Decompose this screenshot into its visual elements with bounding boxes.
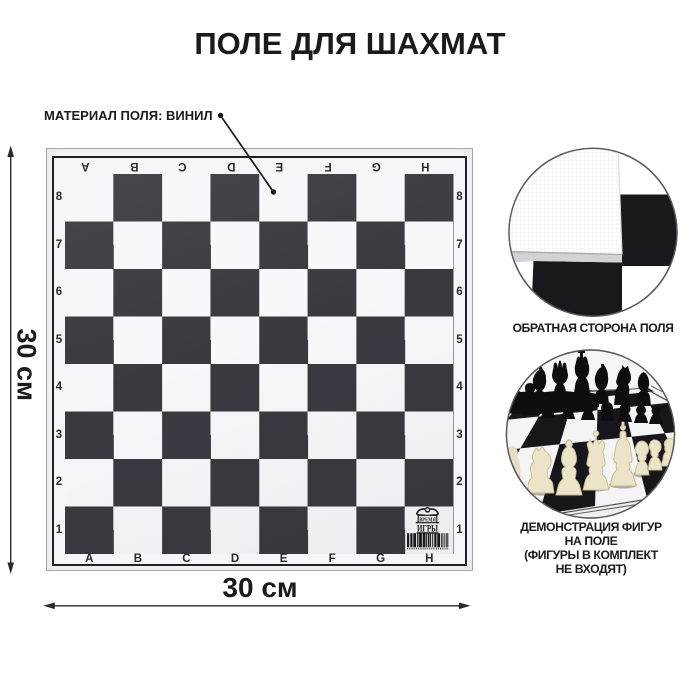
svg-text:ВРЕМЯ: ВРЕМЯ <box>419 517 436 523</box>
